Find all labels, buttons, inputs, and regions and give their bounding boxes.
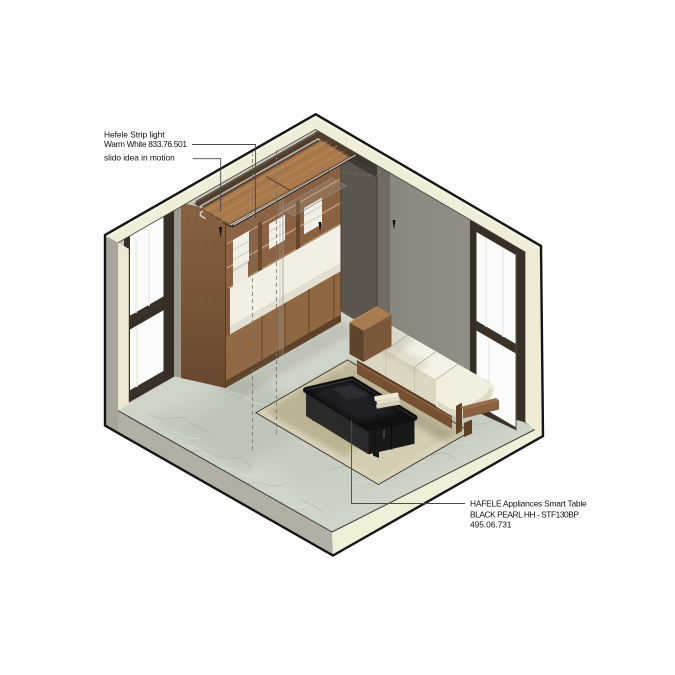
svg-text:BLACK PEARL HH - STF130BP: BLACK PEARL HH - STF130BP [470,509,579,519]
svg-text:Hefele Strip light: Hefele Strip light [104,129,165,139]
svg-text:HAFELE Appliances Smart Table: HAFELE Appliances Smart Table [470,499,587,509]
svg-text:slido idea in motion: slido idea in motion [104,153,175,163]
svg-text:495.06.731: 495.06.731 [470,520,512,530]
svg-text:Warm White 833.76.501: Warm White 833.76.501 [104,139,187,149]
